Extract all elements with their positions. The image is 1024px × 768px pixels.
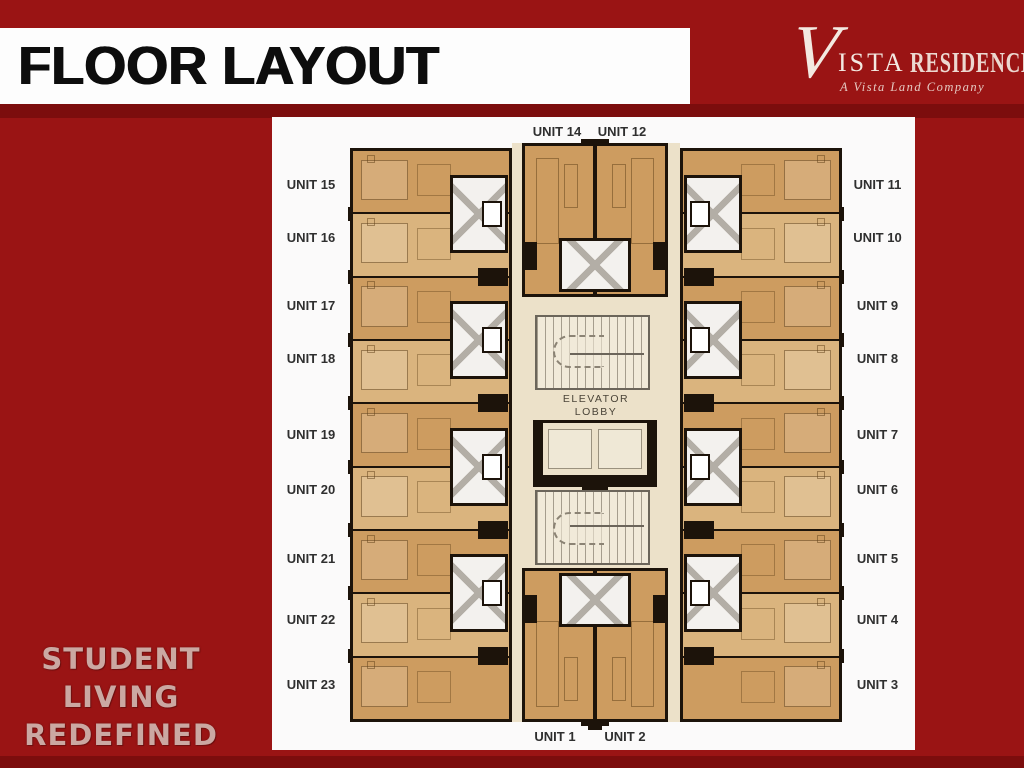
elevator-lobby-line1: ELEVATOR xyxy=(563,393,629,405)
unit-label-bottom: UNIT 1 xyxy=(520,729,590,744)
unit-label-top: UNIT 14 xyxy=(522,124,592,139)
unit-label-left: UNIT 23 xyxy=(272,677,350,692)
entry-vestibule xyxy=(684,647,714,665)
bathroom-pod xyxy=(684,554,742,632)
furniture xyxy=(536,621,558,707)
furniture xyxy=(536,158,558,244)
stool-furniture xyxy=(817,598,825,606)
balcony-wall-tick xyxy=(348,333,353,347)
balcony-wall-tick xyxy=(348,649,353,663)
balcony-wall-tick xyxy=(348,523,353,537)
brand-tagline: A Vista Land Company xyxy=(840,80,985,95)
entry-vestibule xyxy=(478,268,508,286)
bed-furniture xyxy=(784,286,831,326)
desk-furniture xyxy=(417,481,451,513)
balcony-wall-tick xyxy=(839,270,844,284)
balcony-wall-tick xyxy=(839,460,844,474)
brand-name-vista: ISTA xyxy=(838,48,906,78)
desk-furniture xyxy=(417,544,451,576)
entry-door xyxy=(653,242,666,270)
unit-label-right: UNIT 11 xyxy=(840,177,915,192)
elevator-lobby-line2: LOBBY xyxy=(575,406,618,418)
unit-label-left: UNIT 21 xyxy=(272,551,350,566)
bed-furniture xyxy=(361,666,408,706)
bed-furniture xyxy=(784,603,831,643)
elevator-car xyxy=(598,429,642,469)
unit-label-left: UNIT 22 xyxy=(272,612,350,627)
left-unit-wing xyxy=(350,148,512,722)
desk-furniture xyxy=(417,164,451,196)
balcony-wall-tick xyxy=(348,270,353,284)
stool-furniture xyxy=(367,598,375,606)
unit-label-bottom: UNIT 2 xyxy=(590,729,660,744)
unit-label-left: UNIT 16 xyxy=(272,230,350,245)
furniture xyxy=(631,158,653,244)
furniture xyxy=(612,164,626,208)
bathroom-pod xyxy=(450,428,508,506)
elevator-shaft xyxy=(533,420,657,487)
floor-plan-panel: UNIT 14 UNIT 12 UNIT 1 UNIT 2 UNIT 15UNI… xyxy=(272,117,915,750)
elevator-car xyxy=(548,429,592,469)
motto-line: STUDENT xyxy=(18,640,224,678)
furniture xyxy=(631,621,653,707)
unit-label-left: UNIT 15 xyxy=(272,177,350,192)
balcony-wall-tick xyxy=(839,207,844,221)
bed-furniture xyxy=(784,540,831,580)
balcony-wall-tick xyxy=(348,207,353,221)
entry-vestibule xyxy=(478,647,508,665)
bathroom-fixture xyxy=(482,580,502,606)
stool-furniture xyxy=(817,535,825,543)
desk-furniture xyxy=(741,354,775,386)
bed-furniture xyxy=(361,223,408,263)
unit-label-right: UNIT 3 xyxy=(840,677,915,692)
motto-line: REDEFINED xyxy=(18,716,224,754)
motto-line: LIVING xyxy=(18,678,224,716)
brand-name-residences: RESIDENCES xyxy=(910,47,1024,79)
bed-furniture xyxy=(361,413,408,453)
entry-door xyxy=(653,595,666,623)
entry-door xyxy=(524,595,537,623)
unit-label-left: UNIT 18 xyxy=(272,351,350,366)
stool-furniture xyxy=(367,471,375,479)
desk-furniture xyxy=(741,228,775,260)
desk-furniture xyxy=(417,354,451,386)
motto-text: STUDENT LIVING REDEFINED xyxy=(18,640,224,754)
balcony-wall-tick xyxy=(348,460,353,474)
bed-furniture xyxy=(784,413,831,453)
unit-label-left: UNIT 17 xyxy=(272,298,350,313)
unit-label-left: UNIT 20 xyxy=(272,482,350,497)
bathroom-pod xyxy=(684,175,742,253)
desk-furniture xyxy=(741,608,775,640)
unit-label-right: UNIT 7 xyxy=(840,427,915,442)
header-band: FLOOR LAYOUT xyxy=(0,28,690,104)
bed-furniture xyxy=(784,160,831,200)
bottom-divider-stripe xyxy=(0,756,1024,768)
stair-divider xyxy=(570,526,643,528)
bed-furniture xyxy=(361,476,408,516)
stool-furniture xyxy=(817,218,825,226)
unit-label-right: UNIT 5 xyxy=(840,551,915,566)
bathroom-pod xyxy=(684,428,742,506)
stool-furniture xyxy=(367,535,375,543)
bathroom-pod xyxy=(559,573,631,627)
bed-furniture xyxy=(784,350,831,390)
entry-vestibule xyxy=(684,521,714,539)
stool-furniture xyxy=(817,408,825,416)
brand-v-letter: V xyxy=(788,14,842,90)
desk-furniture xyxy=(417,418,451,450)
bed-furniture xyxy=(784,666,831,706)
stool-furniture xyxy=(367,661,375,669)
wall-stub xyxy=(581,139,609,146)
bathroom-fixture xyxy=(690,327,710,353)
unit-label-right: UNIT 10 xyxy=(840,230,915,245)
stool-furniture xyxy=(367,408,375,416)
bed-furniture xyxy=(361,350,408,390)
stairwell-upper xyxy=(535,315,650,390)
center-top-unit-block xyxy=(522,143,668,297)
balcony-wall-tick xyxy=(839,333,844,347)
bathroom-fixture xyxy=(690,580,710,606)
desk-furniture xyxy=(741,418,775,450)
bed-furniture xyxy=(361,540,408,580)
stair-turn-path xyxy=(553,512,604,545)
bathroom-pod xyxy=(450,301,508,379)
unit-label-right: UNIT 4 xyxy=(840,612,915,627)
bathroom-fixture xyxy=(482,454,502,480)
bathroom-pod xyxy=(684,301,742,379)
bed-furniture xyxy=(361,286,408,326)
desk-furniture xyxy=(417,291,451,323)
wall-stub xyxy=(588,722,602,730)
bathroom-pod xyxy=(450,175,508,253)
unit-strip xyxy=(683,656,839,719)
desk-furniture xyxy=(741,291,775,323)
entry-vestibule xyxy=(684,268,714,286)
furniture xyxy=(564,164,578,208)
bed-furniture xyxy=(784,223,831,263)
stool-furniture xyxy=(817,155,825,163)
stool-furniture xyxy=(817,281,825,289)
bathroom-fixture xyxy=(482,327,502,353)
unit-label-right: UNIT 9 xyxy=(840,298,915,313)
desk-furniture xyxy=(741,164,775,196)
desk-furniture xyxy=(417,228,451,260)
elevator-lobby-label: ELEVATOR LOBBY xyxy=(512,393,680,419)
furniture xyxy=(564,657,578,701)
desk-furniture xyxy=(417,608,451,640)
unit-strip xyxy=(353,656,509,719)
balcony-wall-tick xyxy=(839,586,844,600)
bed-furniture xyxy=(784,476,831,516)
balcony-wall-tick xyxy=(839,396,844,410)
unit-label-right: UNIT 8 xyxy=(840,351,915,366)
stair-divider xyxy=(570,353,643,355)
balcony-wall-tick xyxy=(839,523,844,537)
entry-door xyxy=(524,242,537,270)
bathroom-fixture xyxy=(482,201,502,227)
desk-furniture xyxy=(741,544,775,576)
stool-furniture xyxy=(367,345,375,353)
bathroom-pod xyxy=(450,554,508,632)
entry-vestibule xyxy=(478,394,508,412)
unit-label-left: UNIT 19 xyxy=(272,427,350,442)
bathroom-fixture xyxy=(690,201,710,227)
entry-vestibule xyxy=(684,394,714,412)
furniture xyxy=(612,657,626,701)
balcony-wall-tick xyxy=(348,396,353,410)
entry-vestibule xyxy=(478,521,508,539)
stairwell-lower xyxy=(535,490,650,565)
desk-furniture xyxy=(741,481,775,513)
balcony-wall-tick xyxy=(348,586,353,600)
stool-furniture xyxy=(367,155,375,163)
brand-logo: V ISTA RESIDENCES A Vista Land Company xyxy=(788,18,1020,110)
unit-label-top: UNIT 12 xyxy=(587,124,657,139)
stool-furniture xyxy=(817,345,825,353)
bed-furniture xyxy=(361,160,408,200)
bed-furniture xyxy=(361,603,408,643)
page-title: FLOOR LAYOUT xyxy=(18,35,439,97)
balcony-wall-tick xyxy=(839,649,844,663)
unit-label-right: UNIT 6 xyxy=(840,482,915,497)
desk-furniture xyxy=(417,671,451,703)
bathroom-fixture xyxy=(690,454,710,480)
stool-furniture xyxy=(367,281,375,289)
center-bottom-unit-block xyxy=(522,568,668,722)
stool-furniture xyxy=(817,471,825,479)
bathroom-pod xyxy=(559,238,631,292)
right-unit-wing xyxy=(680,148,842,722)
desk-furniture xyxy=(741,671,775,703)
stool-furniture xyxy=(367,218,375,226)
stool-furniture xyxy=(817,661,825,669)
